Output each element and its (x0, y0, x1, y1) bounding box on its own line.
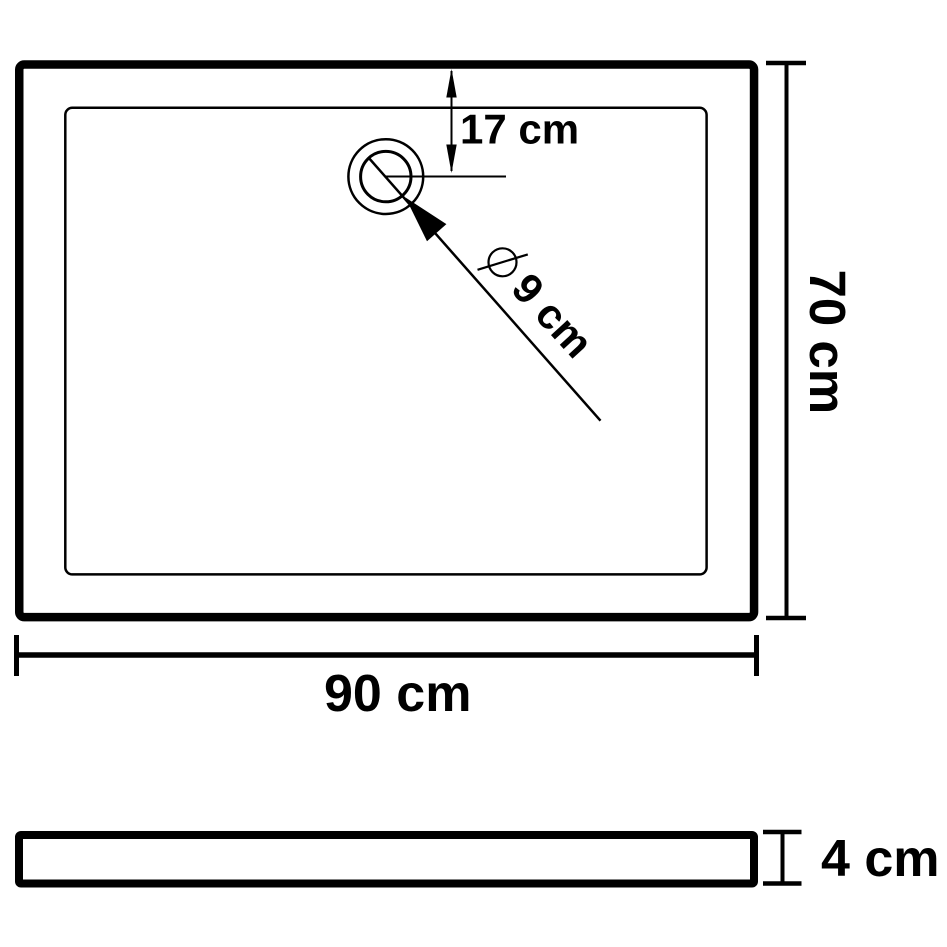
svg-text:17 cm: 17 cm (460, 105, 579, 152)
svg-text:70 cm: 70 cm (799, 270, 856, 415)
svg-text:90 cm: 90 cm (324, 665, 471, 723)
svg-text:4 cm: 4 cm (821, 830, 940, 888)
